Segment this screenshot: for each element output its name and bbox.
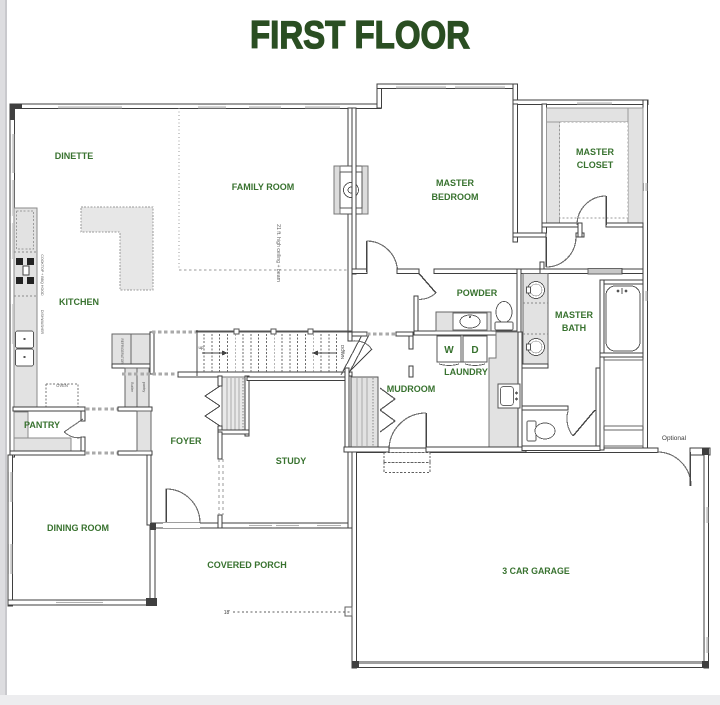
svg-text:MUDROOM: MUDROOM: [387, 384, 436, 394]
svg-text:DINING ROOM: DINING ROOM: [47, 523, 109, 533]
svg-text:PANTRY: PANTRY: [24, 420, 60, 430]
svg-text:DISHWASHER: DISHWASHER: [40, 310, 44, 335]
svg-text:OVEN: OVEN: [56, 383, 68, 388]
svg-text:Butler: Butler: [130, 382, 134, 393]
svg-text:LAUNDRY: LAUNDRY: [444, 367, 488, 377]
svg-text:W: W: [444, 345, 454, 356]
svg-text:Optional: Optional: [662, 435, 687, 442]
svg-text:STUDY: STUDY: [276, 456, 307, 466]
svg-text:FOYER: FOYER: [170, 436, 202, 446]
svg-text:POWDER: POWDER: [457, 288, 498, 298]
svg-text:COOKTOP + BBQ HOOD: COOKTOP + BBQ HOOD: [40, 254, 44, 296]
svg-text:KITCHEN: KITCHEN: [59, 297, 99, 307]
svg-text:CLOSET: CLOSET: [577, 160, 614, 170]
svg-text:FIRST FLOOR: FIRST FLOOR: [250, 14, 470, 57]
svg-text:DINETTE: DINETTE: [55, 151, 94, 161]
svg-text:BATH: BATH: [562, 323, 586, 333]
svg-text:21 ft. high ceiling + beam: 21 ft. high ceiling + beam: [275, 224, 281, 282]
svg-text:3 CAR GARAGE: 3 CAR GARAGE: [502, 566, 570, 576]
svg-text:MASTER: MASTER: [576, 147, 615, 157]
svg-text:up: up: [198, 345, 204, 350]
svg-text:FAMILY ROOM: FAMILY ROOM: [232, 182, 295, 192]
svg-text:18': 18': [224, 610, 231, 616]
svg-text:MASTER: MASTER: [436, 178, 475, 188]
svg-text:pantry: pantry: [142, 382, 146, 393]
svg-text:5'0: 5'0: [342, 350, 346, 355]
svg-text:BEDROOM: BEDROOM: [432, 192, 479, 202]
svg-text:REFRIGERATOR: REFRIGERATOR: [120, 338, 124, 364]
svg-text:D: D: [471, 345, 478, 356]
svg-text:MASTER: MASTER: [555, 310, 594, 320]
svg-text:COVERED PORCH: COVERED PORCH: [207, 560, 287, 570]
